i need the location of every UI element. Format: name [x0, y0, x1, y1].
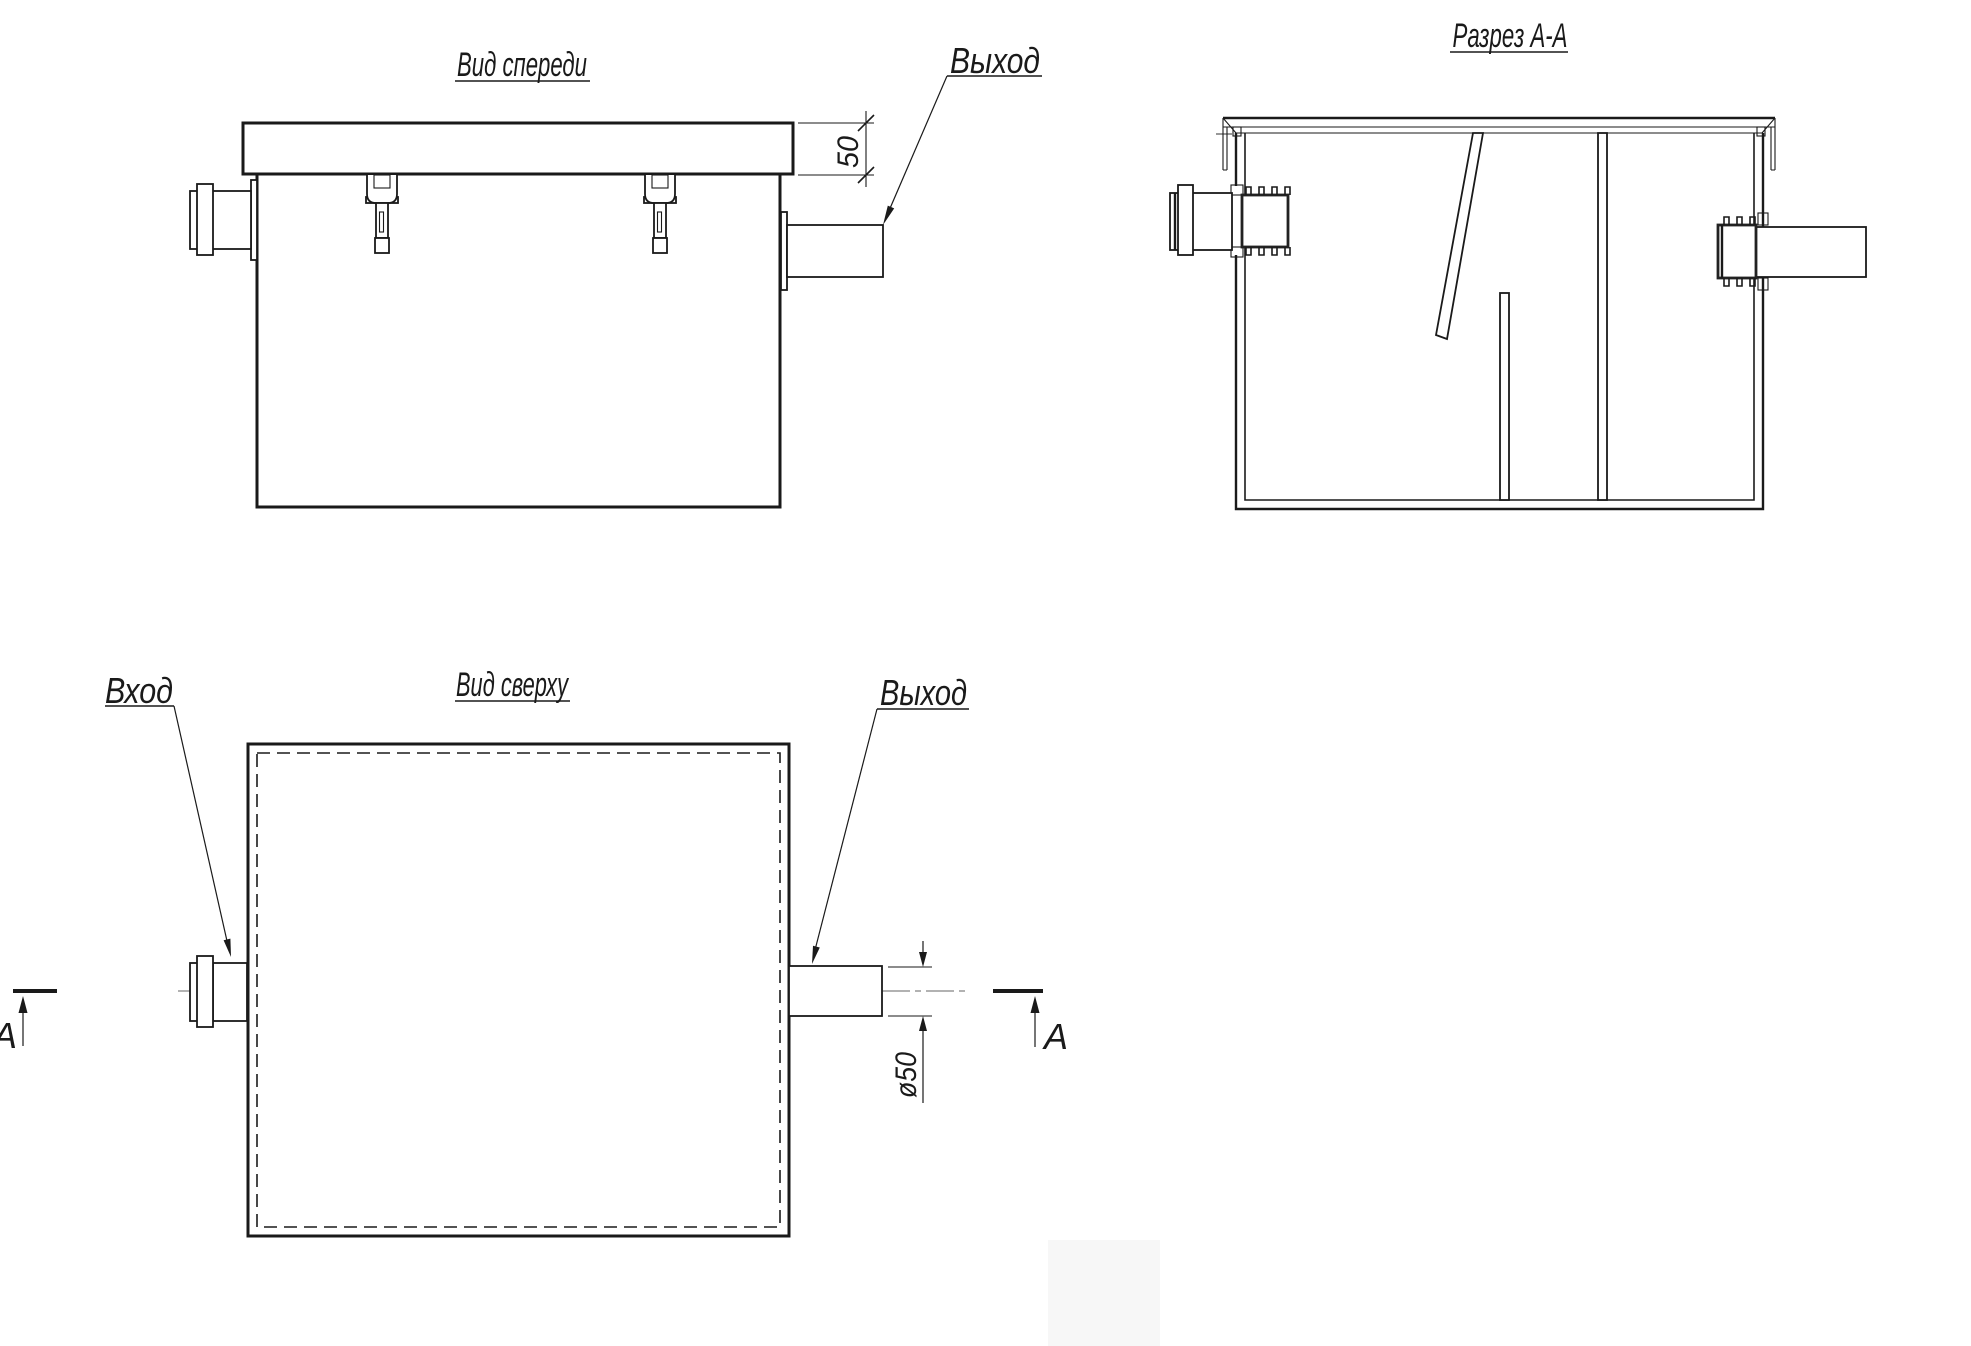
- inlet-flange-ring: [197, 956, 213, 1027]
- clamp-foot: [375, 238, 389, 253]
- section-divider-wall: [1598, 133, 1607, 500]
- top-view-title: Вид сверху: [456, 666, 569, 704]
- clamp-foot: [653, 238, 667, 253]
- technical-drawing: Вид спереди: [0, 0, 1971, 1346]
- section-view: Разрез А-А: [1170, 17, 1866, 509]
- clamp-hook: [367, 175, 397, 203]
- top-tank-outline: [248, 744, 789, 1236]
- clamp-hook: [645, 175, 675, 203]
- top-dim-diameter: ø50: [888, 941, 932, 1103]
- leader-line: [815, 709, 877, 950]
- top-view: Вид сверху Вход Выход: [0, 666, 1068, 1236]
- lid-right-lip: [1771, 118, 1775, 170]
- leader-line: [174, 706, 227, 941]
- front-tank-body: [257, 174, 780, 507]
- leader-arrowhead-icon: [883, 206, 894, 225]
- front-outlet-leader: Выход: [883, 40, 1042, 225]
- lid-inner-lines: [1223, 127, 1775, 133]
- section-letter-left: А: [0, 1015, 17, 1056]
- section-letter-right: А: [1042, 1016, 1068, 1057]
- clamp-strap: [654, 203, 666, 238]
- top-inlet-pipe: [190, 956, 247, 1027]
- outlet-wall-boss: [781, 212, 787, 290]
- section-arrow-up-icon: [19, 996, 28, 1013]
- dim-50-value: 50: [832, 136, 865, 168]
- section-lid: [1216, 118, 1775, 170]
- section-arrow-up-icon: [1031, 996, 1040, 1013]
- outlet-socket: [1718, 225, 1756, 278]
- dim-arrow-up-icon: [919, 1016, 927, 1031]
- section-inclined-baffle: [1436, 133, 1483, 339]
- front-inlet-pipe: [190, 180, 257, 260]
- front-view-title: Вид спереди: [457, 46, 587, 84]
- section-outlet-pipe: [1718, 213, 1866, 290]
- dim-diameter-value: ø50: [890, 1052, 923, 1098]
- clamp-strap: [376, 203, 388, 238]
- section-mark-left: А: [0, 991, 57, 1056]
- front-tank-lid: [243, 123, 793, 174]
- section-view-title: Разрез А-А: [1453, 17, 1568, 55]
- inlet-flange-ring: [197, 184, 213, 255]
- outlet-pipe-body: [1756, 227, 1866, 277]
- section-inlet-pipe: [1170, 185, 1290, 257]
- front-dim-50: 50: [798, 111, 874, 187]
- front-view: Вид спереди: [190, 40, 1042, 507]
- lid-left-lip: [1223, 118, 1227, 170]
- inlet-socket: [213, 963, 247, 1021]
- section-mark-right: А: [993, 991, 1068, 1057]
- drawing-sheet: Вид спереди: [0, 0, 1971, 1346]
- leader-arrowhead-icon: [812, 946, 820, 964]
- leader-arrowhead-icon: [224, 939, 231, 957]
- front-outlet-pipe: [781, 212, 883, 290]
- inlet-flange-ring: [1178, 185, 1193, 255]
- dim-arrow-down-icon: [919, 952, 927, 967]
- section-short-baffle: [1500, 293, 1509, 500]
- outlet-pipe-body: [787, 225, 883, 277]
- inlet-socket: [1242, 195, 1288, 247]
- scan-artifact: [1048, 1240, 1160, 1346]
- lid-corner-miters: [1223, 118, 1775, 133]
- top-outlet-pipe: [789, 966, 882, 1016]
- top-outlet-leader: Выход: [812, 672, 969, 964]
- top-outlet-label: Выход: [880, 672, 967, 713]
- top-inlet-label: Вход: [105, 670, 173, 711]
- top-inlet-leader: Вход: [105, 670, 231, 957]
- inlet-socket: [212, 191, 251, 249]
- front-outlet-label: Выход: [950, 40, 1040, 81]
- leader-line: [888, 76, 947, 213]
